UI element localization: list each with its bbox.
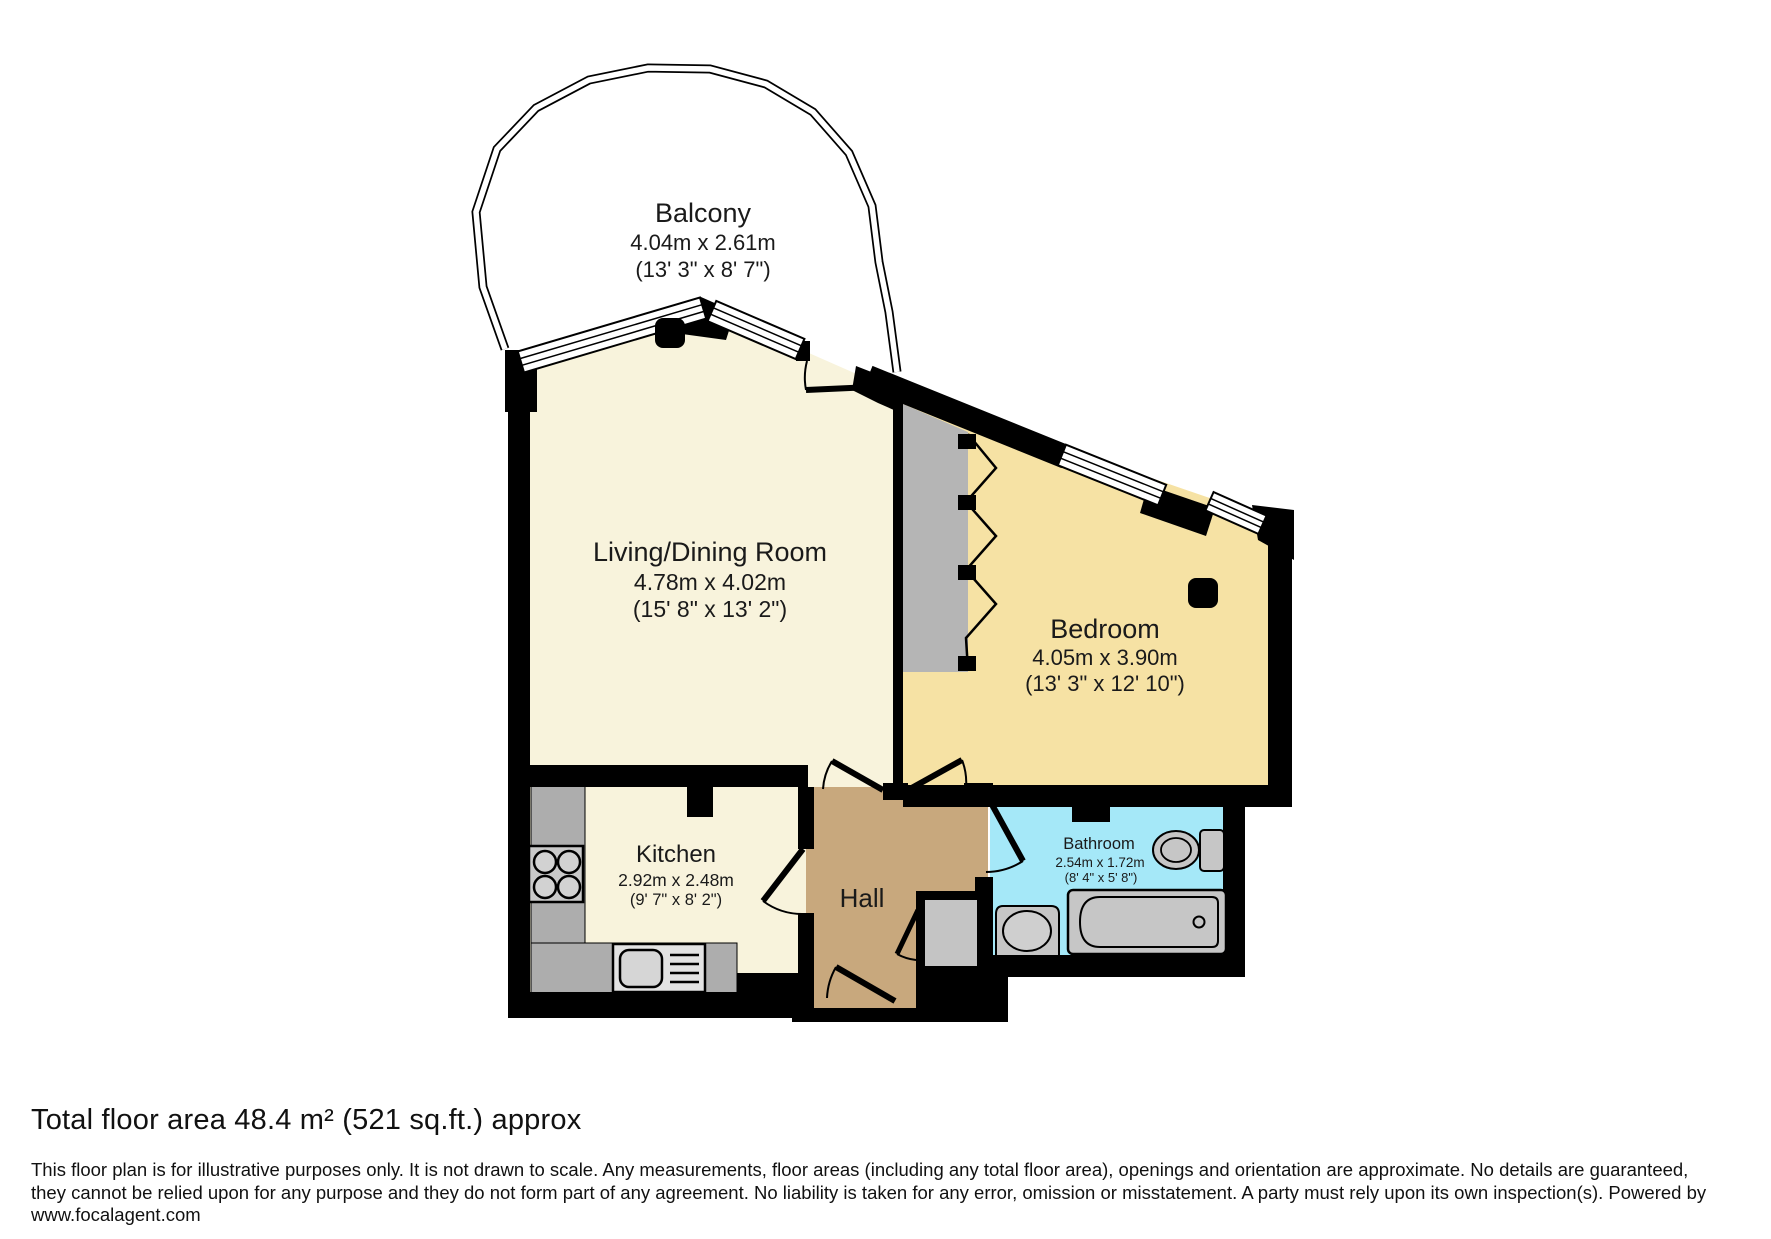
living-column	[655, 318, 685, 348]
disclaimer-line-3: www.focalagent.com	[31, 1204, 1756, 1227]
total-floor-area: Total floor area 48.4 m² (521 sq.ft.) ap…	[31, 1104, 1756, 1137]
kitchen-dim-metric: 2.92m x 2.48m	[618, 870, 734, 890]
footer: Total floor area 48.4 m² (521 sq.ft.) ap…	[31, 1104, 1756, 1227]
balcony-dim-metric: 4.04m x 2.61m	[630, 230, 776, 255]
hall-label: Hall	[840, 883, 885, 913]
balcony-dim-imperial: (13' 3" x 8' 7")	[635, 257, 770, 282]
floor-plan-page: Balcony 4.04m x 2.61m (13' 3" x 8' 7") L…	[0, 0, 1771, 1239]
toilet-icon	[1153, 830, 1224, 871]
bedroom-dim-imperial: (13' 3" x 12' 10")	[1025, 671, 1185, 696]
kitchen-label: Kitchen	[636, 841, 716, 868]
bathtub-icon	[1068, 890, 1226, 954]
bedroom-dim-metric: 4.05m x 3.90m	[1032, 645, 1178, 670]
hob-icon	[529, 846, 583, 902]
disclaimer: This floor plan is for illustrative purp…	[31, 1159, 1756, 1227]
bathroom-dim-metric: 2.54m x 1.72m	[1055, 855, 1144, 870]
disclaimer-line-1: This floor plan is for illustrative purp…	[31, 1159, 1756, 1182]
living-room-label: Living/Dining Room	[593, 537, 827, 567]
bedroom-label: Bedroom	[1050, 614, 1160, 644]
kitchen-sink-icon	[613, 944, 705, 992]
bathroom-label: Bathroom	[1063, 835, 1135, 853]
living-room-dim-imperial: (15' 8" x 13' 2")	[633, 596, 787, 622]
bedroom-column	[1188, 578, 1218, 608]
living-room-dim-metric: 4.78m x 4.02m	[634, 569, 786, 595]
bathroom-dim-imperial: (8' 4" x 5' 8")	[1065, 870, 1138, 885]
balcony-label: Balcony	[655, 198, 752, 228]
floor-plan: Balcony 4.04m x 2.61m (13' 3" x 8' 7") L…	[0, 0, 1771, 1239]
basin-icon	[996, 906, 1059, 956]
disclaimer-line-2: they cannot be relied upon for any purpo…	[31, 1182, 1756, 1205]
kitchen-dim-imperial: (9' 7" x 8' 2")	[630, 891, 722, 909]
